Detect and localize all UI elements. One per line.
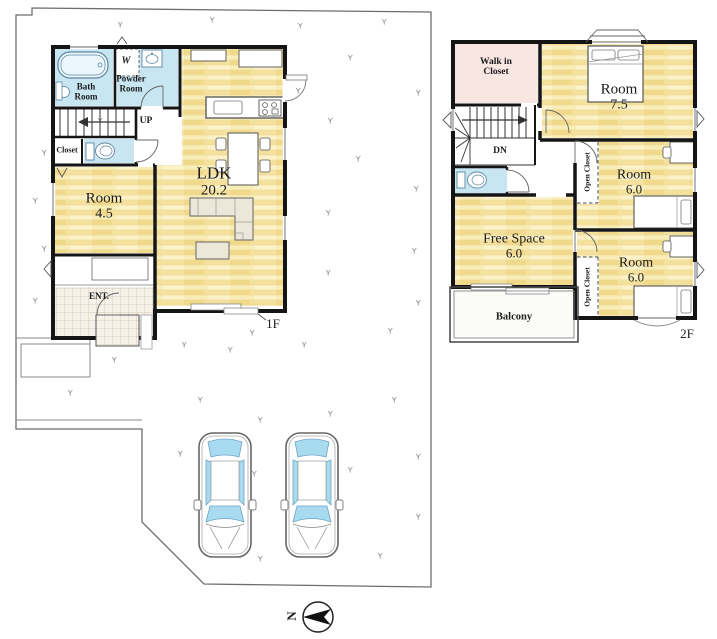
back-door-leaf bbox=[286, 75, 307, 80]
entrance-label: ENT. bbox=[89, 292, 109, 302]
room-75-label: Room 7.5 bbox=[601, 81, 638, 112]
stove-icon bbox=[259, 100, 281, 116]
north-label: N bbox=[285, 611, 299, 620]
back-door-arc bbox=[285, 80, 306, 101]
toilet-icon-1f bbox=[86, 143, 115, 160]
ldk-size: 20.2 bbox=[197, 183, 232, 199]
open-closet-a-label: Open Closet bbox=[584, 152, 593, 192]
open-closet-b-label: Open Closet bbox=[584, 267, 593, 307]
closet-label: Closet bbox=[56, 147, 77, 156]
toilet-icon-2f bbox=[457, 172, 487, 188]
room-6a-label: Room 6.0 bbox=[617, 167, 651, 196]
ldk-name: LDK bbox=[197, 165, 232, 183]
floor-2f-label: 2F bbox=[680, 327, 694, 341]
room-6b-label: Room 6.0 bbox=[619, 255, 653, 284]
free-space-label: Free Space 6.0 bbox=[483, 231, 545, 260]
kitchen-counter bbox=[206, 97, 284, 118]
room-75-size: 7.5 bbox=[601, 98, 638, 113]
room-4_5-size: 4.5 bbox=[86, 207, 123, 222]
awning-arc bbox=[634, 320, 680, 326]
room-6a-size: 6.0 bbox=[617, 183, 651, 197]
room-6a-name: Room bbox=[617, 167, 651, 182]
stairs-down-label: DN bbox=[493, 146, 507, 156]
sliding-window bbox=[224, 308, 258, 314]
stairs-1f bbox=[60, 108, 130, 137]
balcony-label: Balcony bbox=[496, 311, 532, 322]
north-arrow bbox=[303, 602, 333, 632]
stairs-2f bbox=[455, 107, 535, 165]
floorplan-page: Bath Room W Powder Room UP Closet Room 4… bbox=[0, 0, 717, 639]
bath-room-label: Bath Room bbox=[69, 82, 103, 101]
free-space-name: Free Space bbox=[483, 231, 545, 246]
room-4_5-name: Room bbox=[86, 190, 123, 206]
powder-room-label: Powder Room bbox=[105, 74, 157, 93]
walk-in-closet-label: Walk in Closet bbox=[468, 57, 524, 78]
floor-1f-label: 1F bbox=[266, 317, 280, 331]
washer-label: W bbox=[122, 57, 131, 68]
bed-room-6b bbox=[634, 286, 694, 317]
car-right bbox=[281, 433, 343, 557]
sink-icon bbox=[142, 50, 162, 67]
room-6b-name: Room bbox=[619, 255, 653, 270]
coffee-table bbox=[196, 242, 229, 259]
room-75-name: Room bbox=[601, 81, 638, 97]
ldk-label: LDK 20.2 bbox=[197, 165, 232, 200]
room-6b-size: 6.0 bbox=[619, 271, 653, 285]
stairs-up-label: UP bbox=[140, 116, 153, 126]
room-4_5-label: Room 4.5 bbox=[86, 190, 123, 221]
bed-room-6a bbox=[634, 196, 694, 228]
free-space-size: 6.0 bbox=[483, 247, 545, 261]
car-left bbox=[194, 433, 256, 557]
